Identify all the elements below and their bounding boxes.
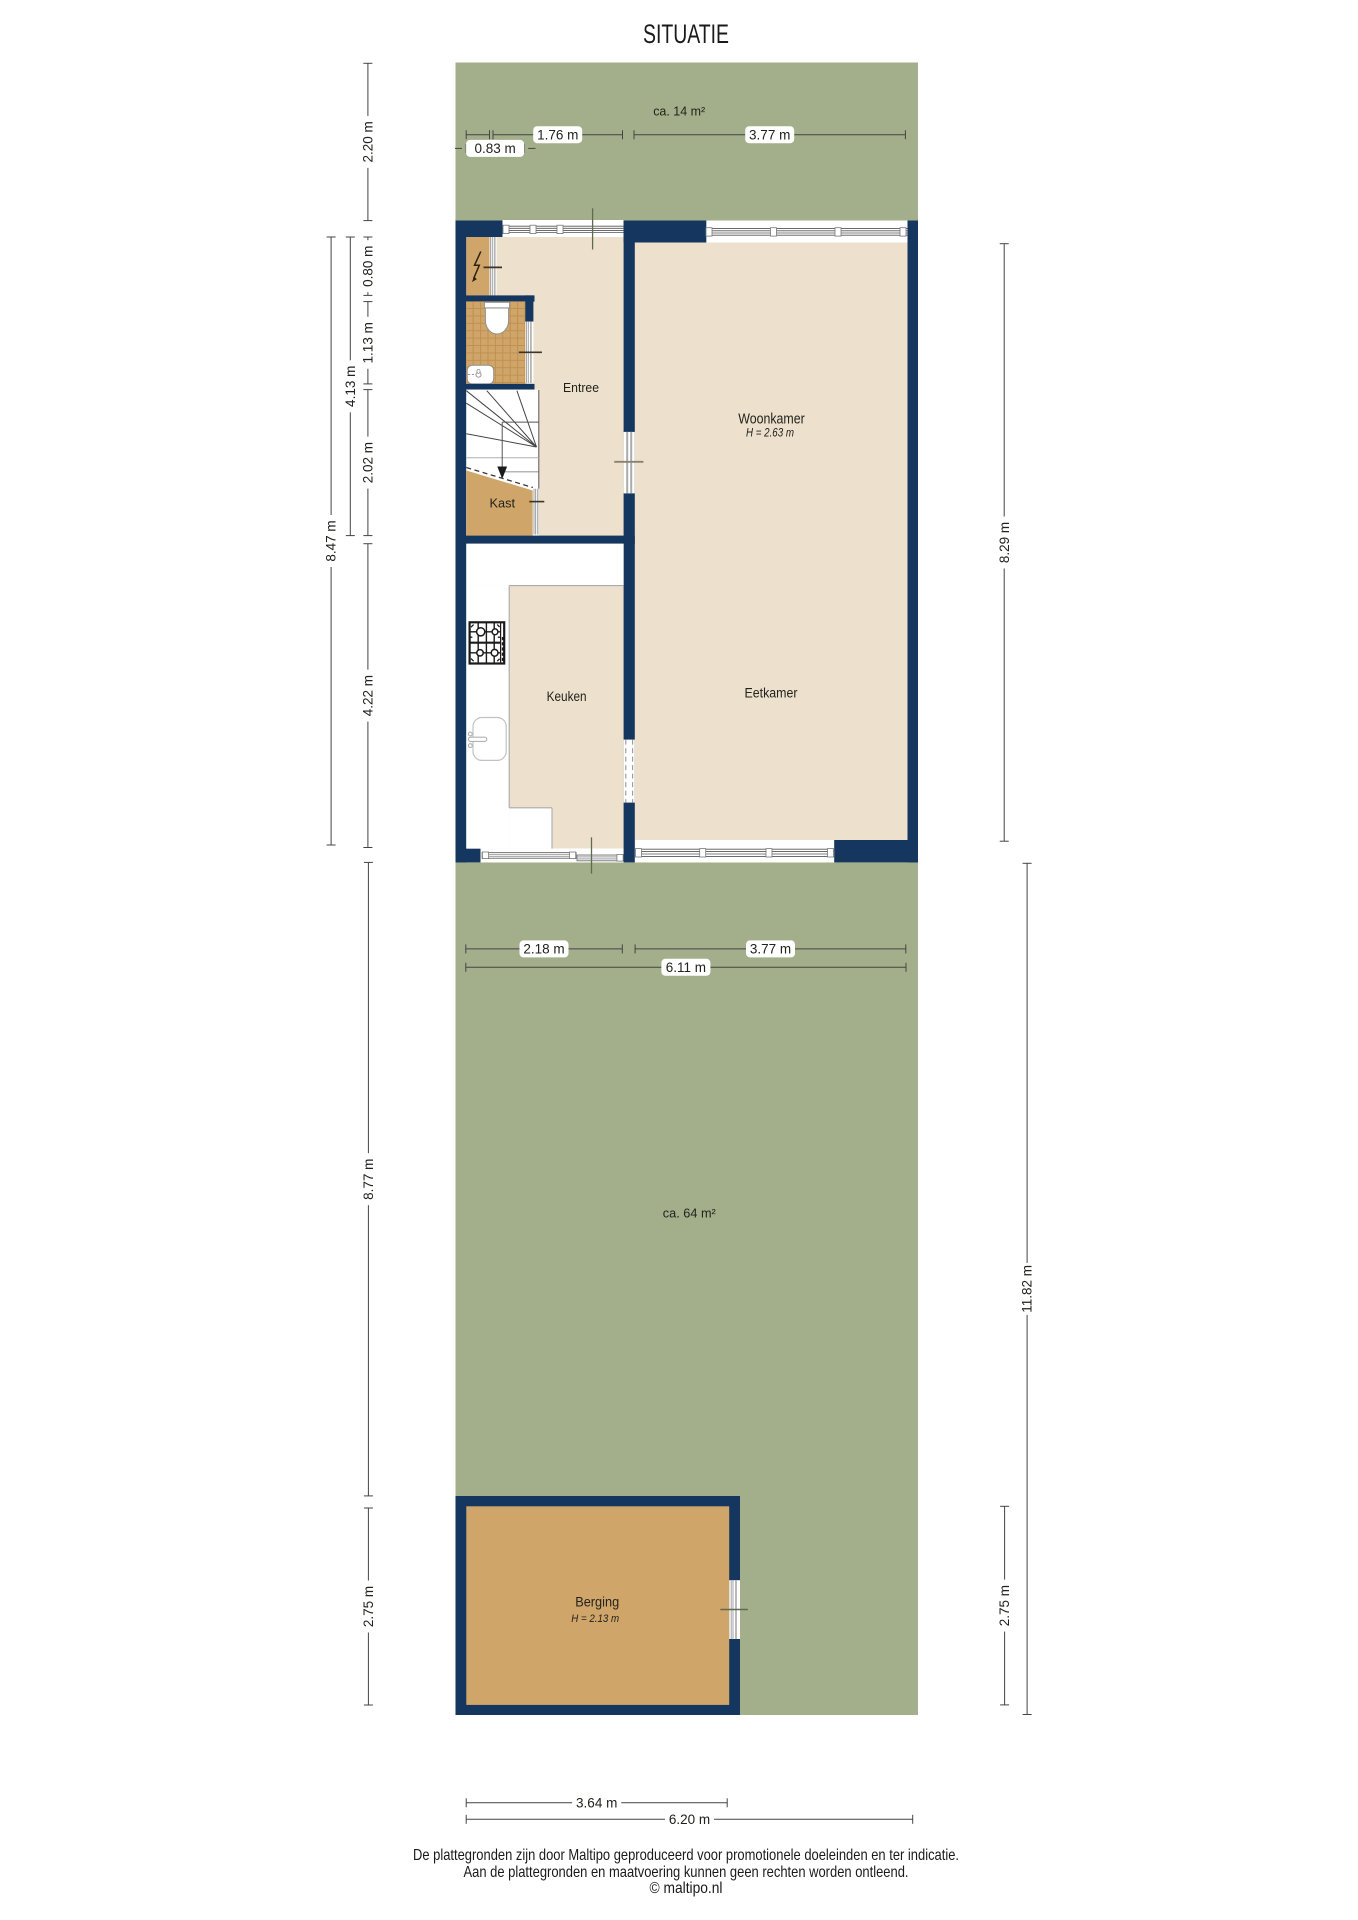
svg-text:6.20 m: 6.20 m <box>669 1812 710 1827</box>
svg-text:2.20 m: 2.20 m <box>361 121 376 162</box>
svg-text:8.47 m: 8.47 m <box>324 520 339 561</box>
svg-text:2.18 m: 2.18 m <box>523 942 564 957</box>
svg-text:H = 2.63 m: H = 2.63 m <box>746 428 794 440</box>
svg-text:Kast: Kast <box>490 496 516 510</box>
svg-text:4.22 m: 4.22 m <box>360 675 375 716</box>
svg-text:SITUATIE: SITUATIE <box>643 19 729 49</box>
svg-text:© maltipo.nl: © maltipo.nl <box>650 1880 723 1897</box>
svg-text:Keuken: Keuken <box>547 689 587 704</box>
svg-text:6.11 m: 6.11 m <box>666 960 706 975</box>
svg-text:Eetkamer: Eetkamer <box>745 686 798 701</box>
svg-text:2.02 m: 2.02 m <box>361 442 376 483</box>
svg-text:3.77 m: 3.77 m <box>749 127 790 142</box>
svg-text:2.75 m: 2.75 m <box>361 1586 376 1627</box>
svg-text:H = 2.13 m: H = 2.13 m <box>571 1613 619 1625</box>
svg-text:Berging: Berging <box>575 1594 619 1610</box>
svg-text:1.76 m: 1.76 m <box>537 127 578 142</box>
svg-text:1.13 m: 1.13 m <box>361 322 376 363</box>
svg-text:0.80 m: 0.80 m <box>361 246 376 287</box>
svg-text:3.64 m: 3.64 m <box>576 1795 617 1810</box>
svg-text:Entree: Entree <box>563 380 599 395</box>
svg-text:De plattegronden zijn door Mal: De plattegronden zijn door Maltipo gepro… <box>413 1847 959 1864</box>
svg-text:Aan de plattegronden en maatvo: Aan de plattegronden en maatvoering kunn… <box>464 1864 909 1881</box>
svg-text:8.29 m: 8.29 m <box>997 522 1012 563</box>
svg-text:4.13 m: 4.13 m <box>343 366 358 407</box>
svg-text:ca. 64 m²: ca. 64 m² <box>663 1207 716 1221</box>
svg-text:0.83 m: 0.83 m <box>474 141 515 156</box>
svg-text:2.75 m: 2.75 m <box>997 1585 1012 1626</box>
svg-text:3.77 m: 3.77 m <box>750 942 791 957</box>
svg-text:8.77 m: 8.77 m <box>361 1159 376 1200</box>
svg-text:Woonkamer: Woonkamer <box>738 412 805 428</box>
svg-text:ca. 14 m²: ca. 14 m² <box>653 105 705 119</box>
svg-text:11.82 m: 11.82 m <box>1020 1265 1035 1313</box>
